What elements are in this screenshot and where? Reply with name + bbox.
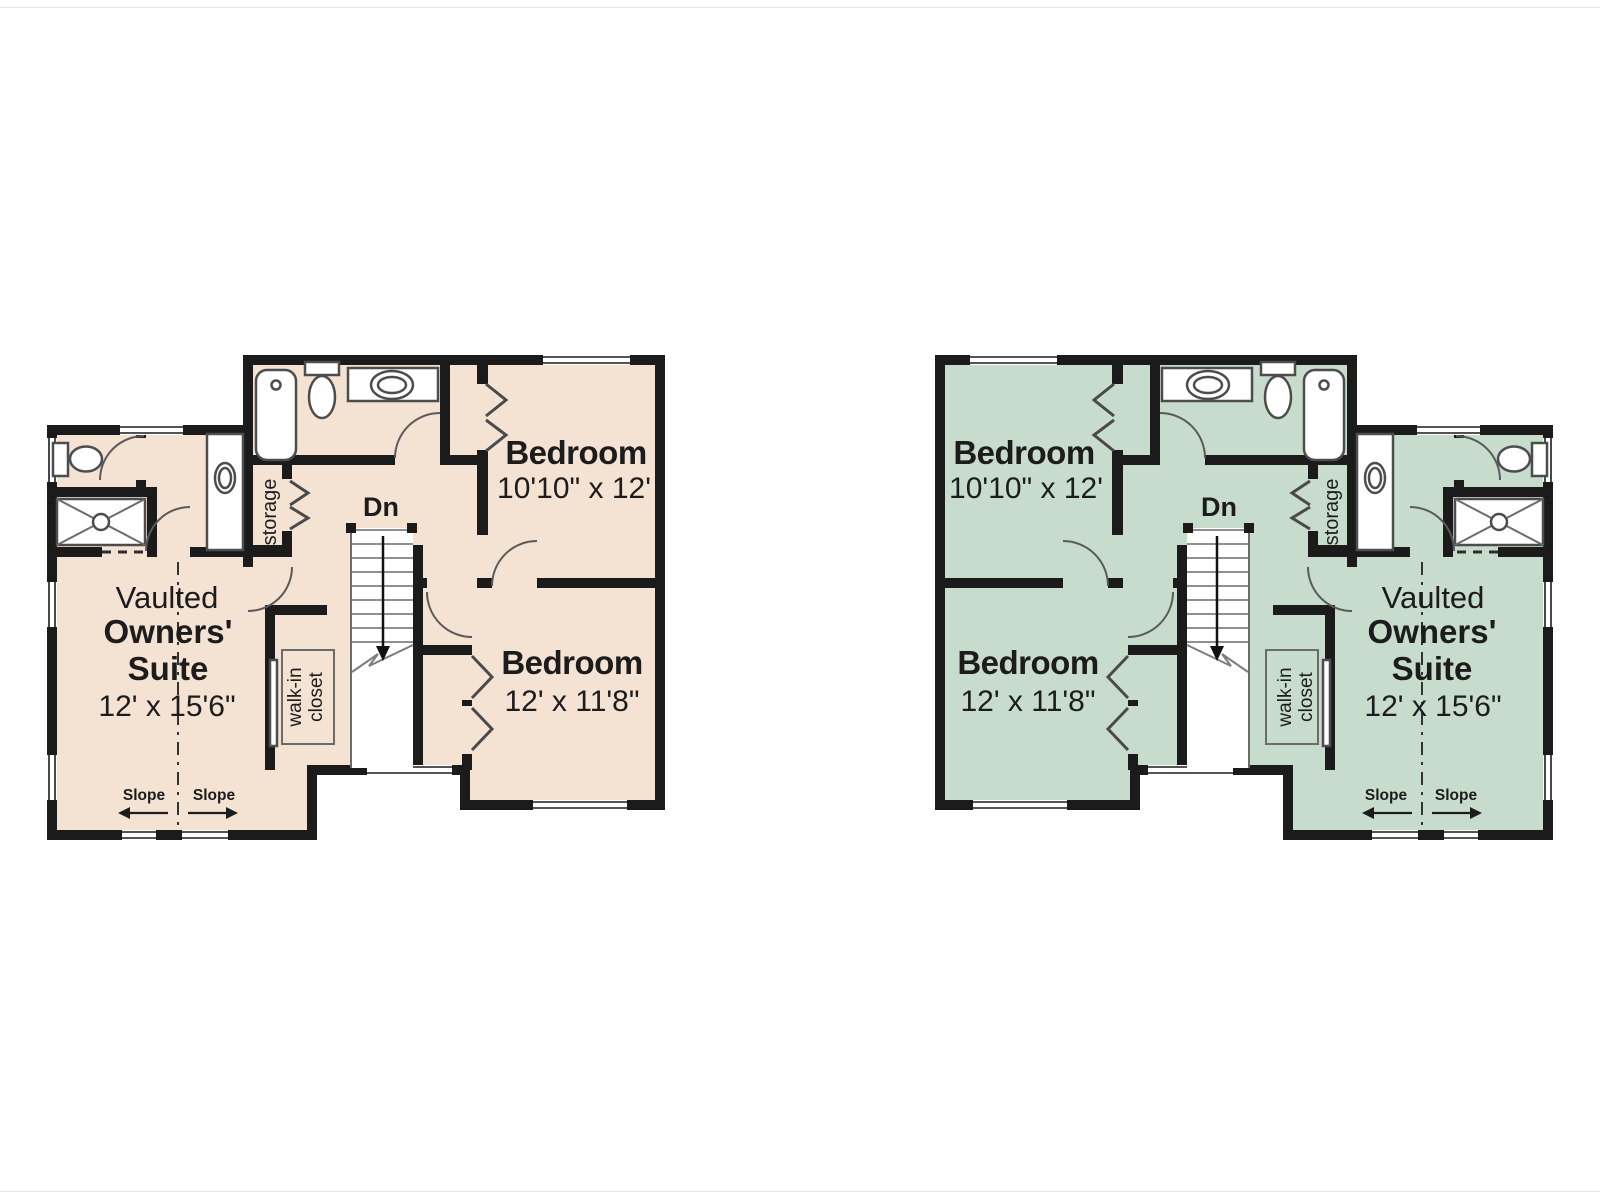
suite-label-vaulted-left: Vaulted xyxy=(116,580,219,615)
suite-label-owners-right: Owners' xyxy=(1368,613,1497,650)
room-label-bedroom-bottom-left: Bedroom xyxy=(501,644,642,681)
stairs-down-label-right: Dn xyxy=(1201,492,1237,522)
suite-label-vaulted-right: Vaulted xyxy=(1382,580,1485,615)
room-dims-bedroom-top-right: 10'10" x 12' xyxy=(949,472,1103,505)
slope-label-right-a: Slope xyxy=(1365,787,1408,804)
room-label-bedroom-bottom-right: Bedroom xyxy=(957,644,1098,681)
room-dims-bedroom-bottom-right: 12' x 11'8" xyxy=(961,685,1096,718)
floor-plans-canvas: Bedroom 10'10" x 12' Bedroom 12' x 11'8"… xyxy=(0,0,1600,1200)
suite-label-suite-right: Suite xyxy=(1392,650,1473,687)
storage-label-right: storage xyxy=(1321,479,1343,546)
suite-dims-right: 12' x 15'6" xyxy=(1364,690,1501,723)
walk-in-closet-label-right: walk-incloset xyxy=(1275,667,1317,727)
room-label-bedroom-top-right: Bedroom xyxy=(953,434,1094,471)
suite-label-suite-left: Suite xyxy=(128,650,209,687)
room-label-bedroom-top-left: Bedroom xyxy=(505,434,646,471)
slope-label-right-b: Slope xyxy=(1435,787,1478,804)
suite-label-owners-left: Owners' xyxy=(104,613,233,650)
suite-dims-left: 12' x 15'6" xyxy=(98,690,235,723)
floor-plan-page: Bedroom 10'10" x 12' Bedroom 12' x 11'8"… xyxy=(0,0,1600,1200)
slope-label-left-b: Slope xyxy=(193,787,236,804)
room-dims-bedroom-top-left: 10'10" x 12' xyxy=(497,472,651,505)
slope-label-left-a: Slope xyxy=(123,787,166,804)
stairs-down-label-left: Dn xyxy=(363,492,399,522)
storage-label-left: storage xyxy=(259,479,281,546)
walk-in-closet-label-left: walk-incloset xyxy=(285,667,327,727)
room-dims-bedroom-bottom-left: 12' x 11'8" xyxy=(505,685,640,718)
